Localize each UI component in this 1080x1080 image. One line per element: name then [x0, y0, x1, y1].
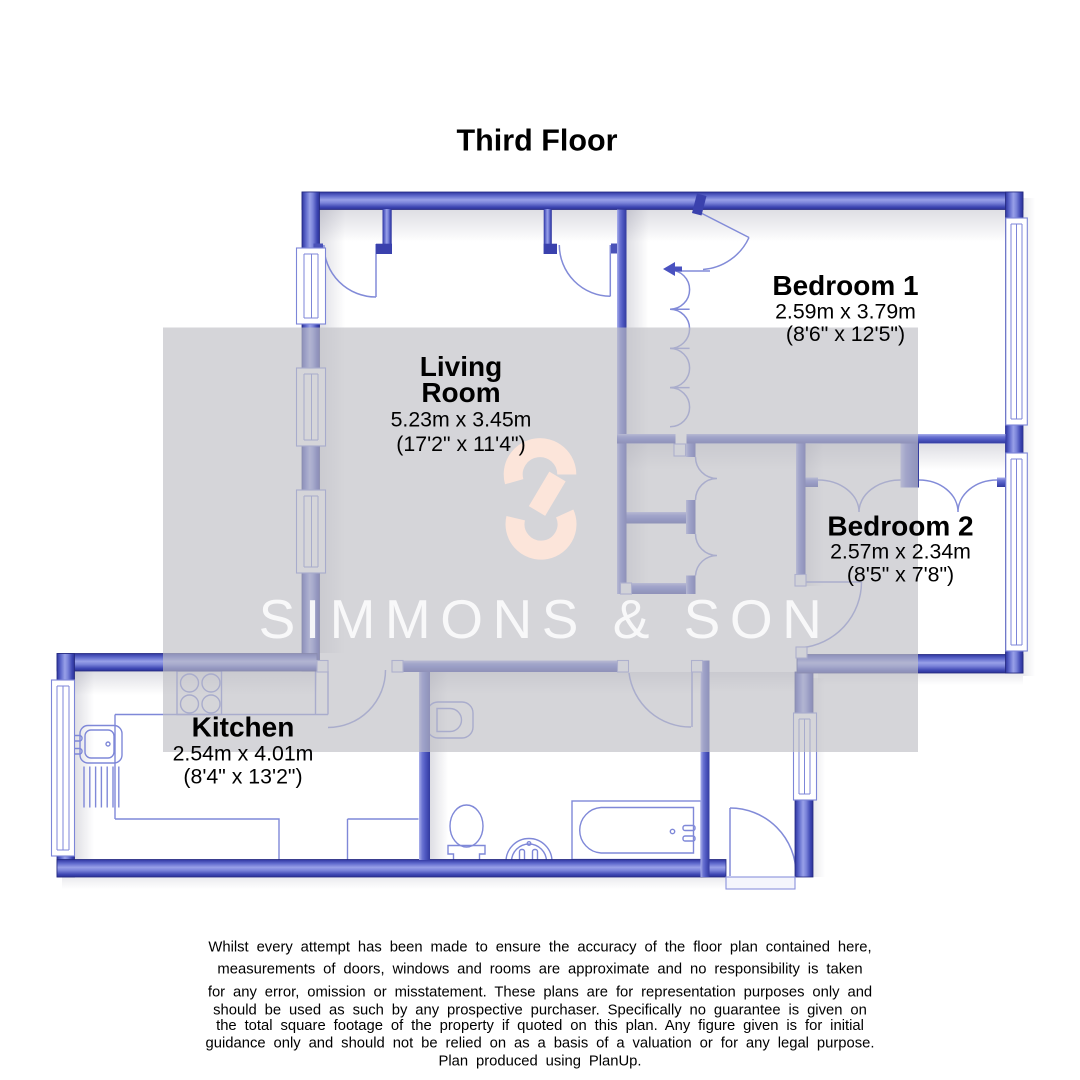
svg-text:SIMMONS & SON: SIMMONS & SON — [259, 588, 832, 650]
svg-text:Bedroom 1: Bedroom 1 — [772, 270, 918, 301]
svg-text:Bedroom 2: Bedroom 2 — [827, 511, 973, 542]
svg-text:Room: Room — [421, 377, 500, 408]
svg-text:2.57m x 2.34m: 2.57m x 2.34m — [830, 540, 971, 564]
svg-text:Whilst every attempt has been: Whilst every attempt has been made to en… — [208, 939, 871, 955]
svg-text:Third Floor: Third Floor — [457, 124, 618, 158]
svg-text:guidance only and should not b: guidance only and should not be relied o… — [206, 1036, 875, 1052]
svg-text:2.54m x 4.01m: 2.54m x 4.01m — [173, 742, 314, 766]
svg-text:Plan produced using PlanUp.: Plan produced using PlanUp. — [438, 1054, 641, 1070]
svg-text:for any error, omission or mis: for any error, omission or misstatement.… — [208, 984, 872, 1000]
svg-text:the total square footage of th: the total square footage of the property… — [216, 1018, 864, 1034]
svg-text:Kitchen: Kitchen — [192, 712, 295, 743]
svg-text:2.59m x 3.79m: 2.59m x 3.79m — [775, 300, 916, 324]
svg-text:measurements of doors, windows: measurements of doors, windows and rooms… — [217, 962, 862, 978]
svg-text:should be used as such by any: should be used as such by any prospectiv… — [213, 1003, 867, 1019]
svg-text:(8'6" x 12'5"): (8'6" x 12'5") — [786, 322, 905, 346]
svg-text:(8'4" x 13'2"): (8'4" x 13'2") — [183, 765, 302, 789]
svg-text:(17'2" x 11'4"): (17'2" x 11'4") — [396, 432, 525, 456]
svg-text:5.23m x 3.45m: 5.23m x 3.45m — [391, 408, 532, 432]
svg-text:(8'5" x 7'8"): (8'5" x 7'8") — [847, 563, 954, 587]
